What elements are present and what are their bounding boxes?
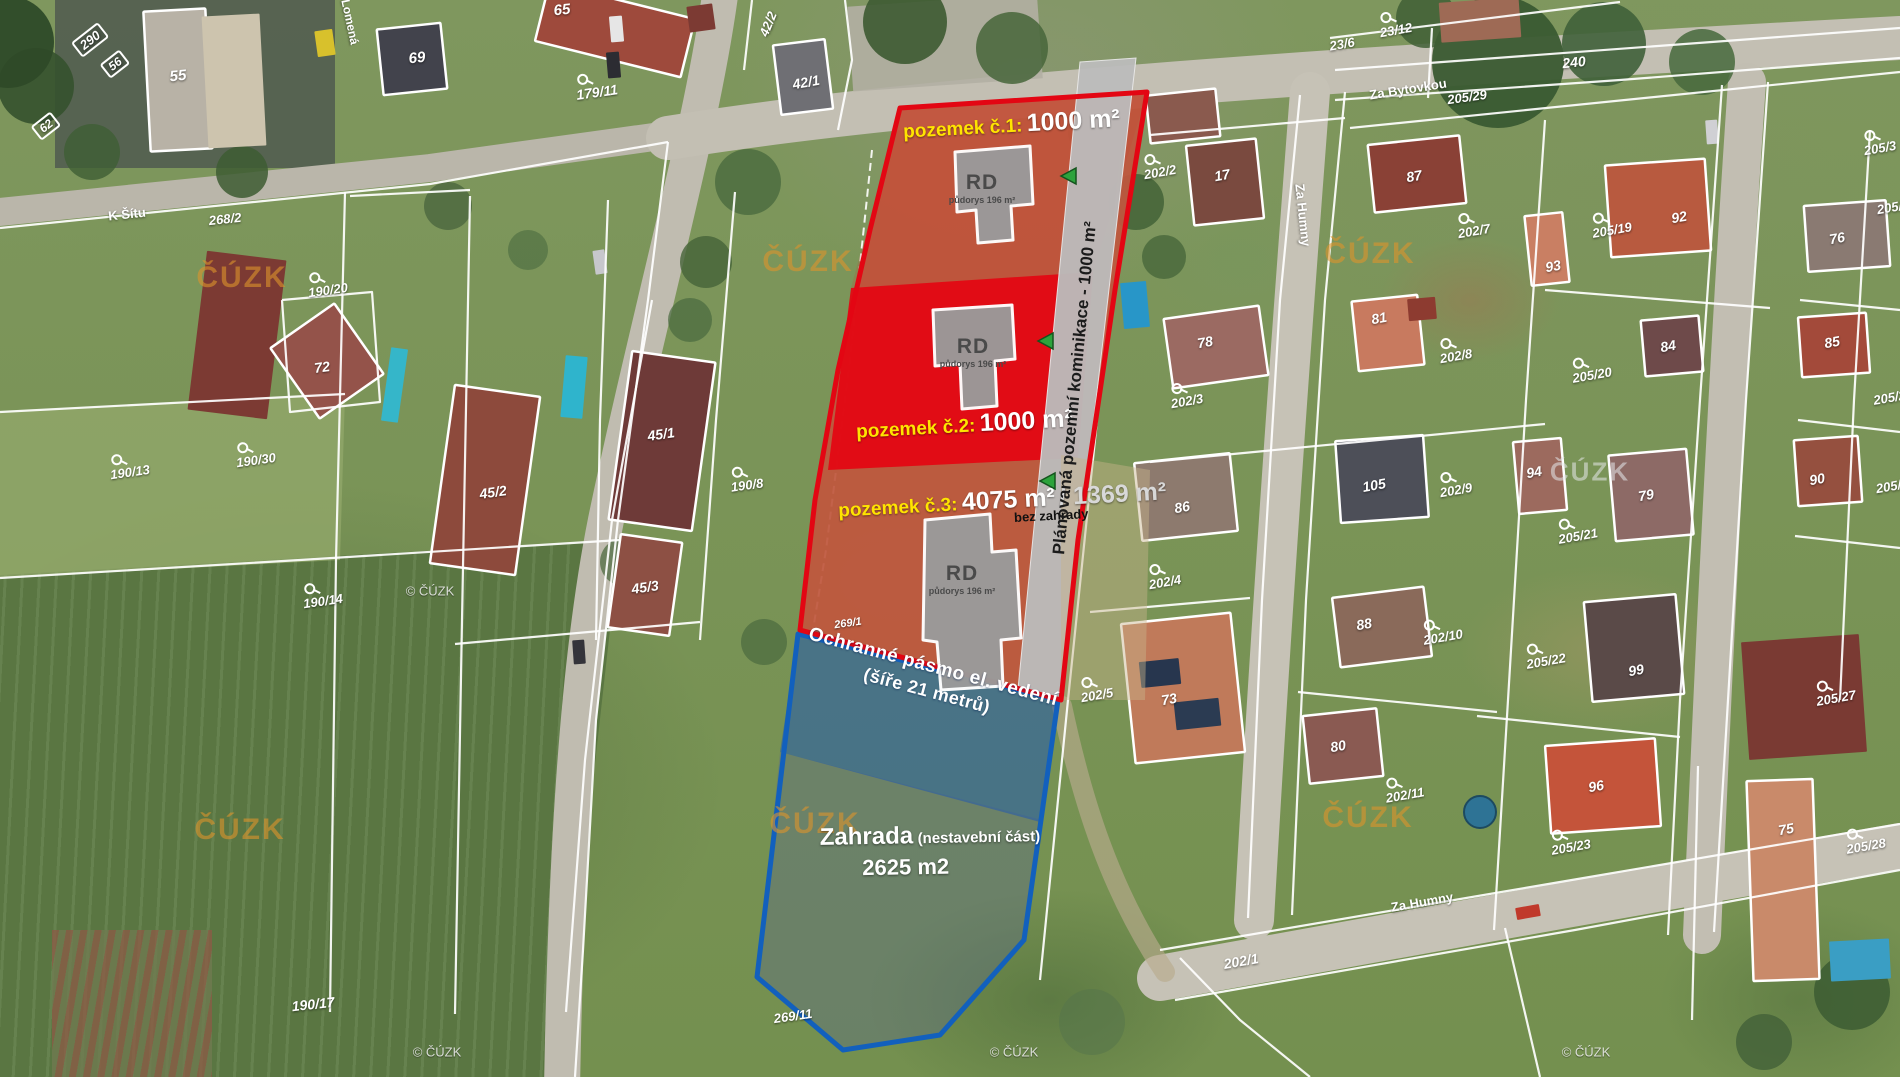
rd-title: RD [949,172,1016,193]
street-label: Lomená [339,0,360,46]
parcel-label: 190/14 [302,592,343,610]
parcel-label: 179/11 [575,82,618,102]
parcel-label: 205/27 [1815,688,1856,708]
no-building-symbol-icon [1846,828,1859,841]
rd-title: RD [929,563,996,584]
parcel-label: 105 [1361,476,1386,494]
parcel-label: 205/29 [1446,88,1487,106]
parcel-label: 202/10 [1422,627,1463,647]
parcel-label: 205/19 [1591,220,1632,240]
no-building-symbol-icon [309,272,321,284]
parcel-label: 88 [1355,616,1373,632]
parcel-label: 190/20 [307,281,348,299]
no-building-symbol-icon [1592,212,1605,225]
parcel-label: 99 [1627,662,1645,678]
parcel-label: 73 [1160,691,1178,707]
parcel-label: 23/12 [1379,21,1413,39]
no-building-symbol-icon [1144,153,1157,166]
no-building-symbol-icon [1171,382,1184,395]
parcel-label: 268/2 [208,211,242,227]
no-building-symbol-icon [1440,471,1453,484]
parcel-label: 190/17 [291,995,335,1013]
parcel-label: 202/4 [1148,573,1182,591]
copyright-watermark: © ČÚZK [990,1045,1039,1060]
no-building-symbol-icon [1081,676,1094,689]
no-building-symbol-icon [1458,212,1471,225]
garden-qualifier: (nestavební část) [917,828,1040,847]
cuzk-watermark: ČÚZK [196,261,287,295]
rd-title: RD [940,336,1007,357]
parcel-label: 80 [1329,738,1347,754]
rd-footprint: půdorys 196 m² [940,360,1007,369]
parcel-label: 202/7 [1457,222,1491,240]
street-label: K Šítu [108,206,147,223]
parcel-label: 202/2 [1143,163,1177,181]
parcel-label: 205/23 [1550,837,1591,857]
parcel-label: 205/24 [1872,387,1900,407]
cuzk-watermark: ČÚZK [194,813,285,847]
rd-footprint: půdorys 196 m² [929,587,996,596]
parcel-label: 45/3 [631,578,660,596]
parcel-label: 55 [169,68,187,85]
parcel-label: 190/30 [235,451,276,469]
parcel-label: 76 [1828,230,1846,246]
parcel-label: 94 [1525,464,1543,480]
parcel-label: 202/1 [1223,951,1260,971]
parcel-label: 65 [553,2,571,19]
parcel-label: 202/9 [1439,481,1473,499]
cuzk-watermark: ČÚZK [1550,457,1630,488]
garden-annotation: Zahrada (nestavební část) 2625 m2 [820,820,1041,882]
parcel-label: 90 [1808,471,1826,487]
copyright-watermark: © ČÚZK [406,584,455,599]
no-building-symbol-icon [1380,11,1393,24]
no-building-symbol-icon [1385,777,1398,790]
parcel-label: 23/6 [1328,35,1355,52]
parcel-label: 75 [1777,821,1795,837]
parcel-label: 56 [99,49,130,79]
parcel-label: 202/5 [1080,686,1114,704]
no-building-symbol-icon [304,583,316,595]
no-building-symbol-icon [731,466,743,478]
parcel-label: 45/1 [647,425,676,443]
parcel-label: 84 [1659,338,1677,354]
parcel-label: 269/11 [773,1007,813,1025]
parcel-label: 190/13 [109,463,150,481]
no-building-symbol-icon [1526,643,1539,656]
parcel-label: 205/2 [1875,477,1900,495]
garden-area: 2625 m2 [862,852,1041,881]
parcel-label: 92 [1670,209,1688,225]
parcel-label: 93 [1544,258,1562,274]
rd-building-label-1: RD půdorys 196 m² [949,172,1016,205]
cuzk-watermark: ČÚZK [762,245,853,279]
parcel-label: 205/28 [1845,836,1886,856]
parcel-label: 42/2 [757,10,779,38]
parcel-label: 96 [1587,778,1605,794]
parcel-label: 190/8 [730,476,764,493]
parcel-label: 205/21 [1557,526,1598,546]
parcel-label: 45/2 [479,483,508,501]
no-building-symbol-icon [1423,619,1436,632]
copyright-watermark: © ČÚZK [1562,1045,1611,1060]
parcel-label: 205/20 [1571,365,1612,385]
no-building-symbol-icon [1572,357,1585,370]
parcel-label: 87 [1405,168,1423,184]
parcel-label: 202/8 [1439,347,1473,365]
no-building-symbol-icon [1816,680,1829,693]
parcel-label: 202/3 [1170,392,1204,410]
no-building-symbol-icon [1440,337,1453,350]
parcel-label: 78 [1196,334,1214,350]
parcel-label: 85 [1823,334,1841,350]
no-building-symbol-icon [577,73,589,85]
parcel-label: 62 [30,111,61,141]
parcel-label: 205/3 [1863,139,1897,157]
street-label: Za Humny [1293,183,1312,247]
cuzk-watermark: ČÚZK [1324,237,1415,271]
no-building-symbol-icon [111,454,123,466]
parcel-label: 69 [408,50,426,67]
rd-footprint: půdorys 196 m² [949,196,1016,205]
parcel-label: 79 [1637,487,1655,503]
parcel-label: 17 [1213,167,1231,183]
street-label: Za Bytovkou [1368,76,1447,101]
no-building-symbol-icon [1558,518,1571,531]
parcel-label: 205/22 [1525,651,1566,671]
parcel-label: 205/4 [1876,198,1900,216]
no-building-symbol-icon [1149,563,1162,576]
plot2-area: 1000 m² [979,404,1073,437]
street-label: Za Humny [1390,890,1454,914]
no-building-symbol-icon [1864,129,1877,142]
parcel-label: 81 [1370,310,1388,326]
no-building-symbol-icon [1551,829,1564,842]
garden-title: Zahrada [820,822,914,851]
aerial-cadastre-map: 2905662556965179/1142/242/123/1223/62402… [0,0,1900,1077]
parcel-label: 240 [1562,54,1587,70]
cuzk-watermark: ČÚZK [1322,801,1413,835]
parcel-label: 42/1 [791,73,820,92]
rd-building-label-2: RD půdorys 196 m² [940,336,1007,369]
no-building-symbol-icon [237,442,249,454]
labels-layer: 2905662556965179/1142/242/123/1223/62402… [0,0,1900,1077]
copyright-watermark: © ČÚZK [413,1045,462,1060]
rd-building-label-3: RD půdorys 196 m² [929,563,996,596]
parcel-label: 72 [313,359,330,375]
parcel-label: 86 [1173,499,1191,515]
parcel-label: 290 [71,22,109,58]
